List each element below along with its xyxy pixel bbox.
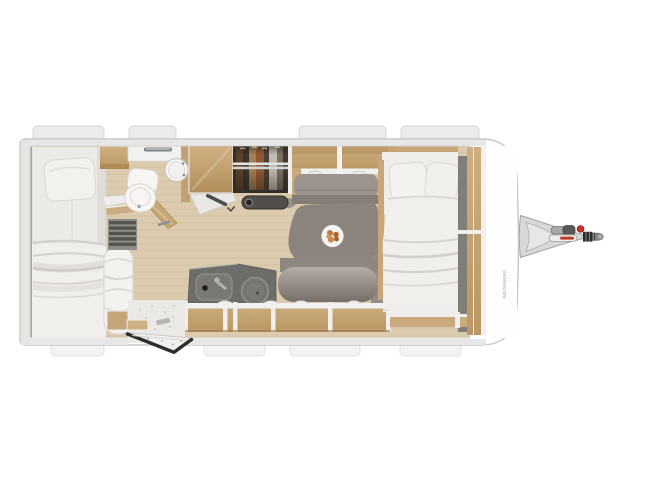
svg-text:WEINSBERG: WEINSBERG: [502, 269, 507, 298]
